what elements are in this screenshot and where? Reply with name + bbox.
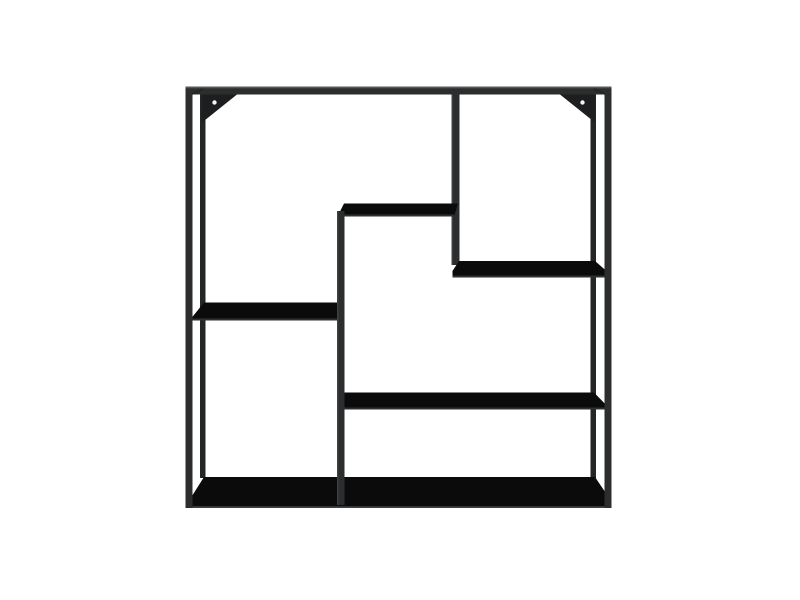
- shelf-middle-step-lip: [338, 215, 454, 217]
- right-post-back: [591, 91, 597, 478]
- shelf-lower-middle: [339, 393, 611, 410]
- middle-divider-highlight: [337, 211, 339, 505]
- right-post-front: [605, 88, 612, 508]
- shelf-right-upper-lip: [453, 276, 611, 278]
- shelf-lower-middle-lip: [339, 408, 610, 410]
- top-rail-highlight: [186, 87, 612, 89]
- mounting-bracket-right: [560, 95, 595, 123]
- mounting-bracket-left: [202, 95, 237, 123]
- bottom-rail-highlight: [186, 506, 612, 508]
- shelf-left-middle: [190, 303, 345, 321]
- left-post-back: [200, 91, 206, 478]
- left-post-front: [186, 88, 193, 508]
- shelf-left-middle-lip: [190, 319, 340, 321]
- screw-hole-left: [212, 100, 216, 104]
- shelf-bottom: [186, 477, 612, 508]
- product-photo: [0, 0, 800, 600]
- screw-hole-right: [580, 100, 584, 104]
- shelf-right-upper: [453, 261, 611, 278]
- right-divider-highlight: [452, 93, 454, 265]
- wall-shelf-figure: [0, 0, 800, 600]
